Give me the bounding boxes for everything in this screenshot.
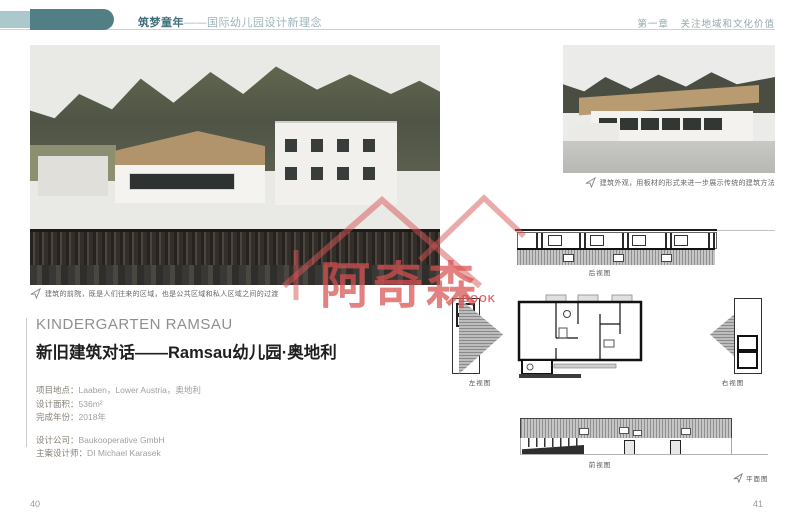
- roof-vent: [619, 427, 629, 434]
- left-view-drawing: [452, 296, 508, 376]
- detail-value: DI Michael Karasek: [87, 448, 161, 458]
- book-title: 筑梦童年——国际幼儿园设计新理念: [138, 14, 322, 30]
- main-photo-caption: 建筑的前院，既是人们往来的区域，也是公共区域和私人区域之间的过渡: [30, 288, 279, 299]
- door: [624, 440, 635, 455]
- detail-row: 设计面积：536m²: [36, 398, 201, 412]
- right-view-label: 右视图: [704, 377, 762, 387]
- detail-value: Laaben，Lower Austria，奥地利: [79, 385, 201, 395]
- chapter-header: 第一章 关注地域和文化价值: [637, 16, 775, 30]
- detail-value: 536m²: [79, 399, 103, 409]
- project-details: 项目地点：Laaben，Lower Austria，奥地利 设计面积：536m²…: [36, 384, 201, 461]
- window: [548, 235, 562, 246]
- roof-line: [515, 229, 717, 231]
- rear-view-label: 后视图: [545, 267, 655, 277]
- project-title-en: KINDERGARTEN RAMSAU: [36, 316, 233, 333]
- window: [613, 254, 624, 262]
- detail-value: 2018年: [79, 412, 106, 422]
- caption-pointer-icon: [585, 177, 596, 188]
- book-title-rest: ——国际幼儿园设计新理念: [184, 17, 322, 29]
- book-title-bold: 筑梦童年: [138, 17, 184, 29]
- detail-label: 项目地点：: [36, 385, 79, 395]
- roof-vent: [633, 430, 642, 436]
- window: [737, 335, 758, 351]
- kindergarten-window-band: [129, 173, 235, 190]
- roof-line-extension: [717, 230, 775, 231]
- caption-pointer-icon: [733, 473, 743, 483]
- gable-arrow: [459, 298, 503, 374]
- roof-vent: [579, 428, 589, 435]
- window: [661, 254, 672, 262]
- side-photo-caption-text: 建筑外观，用板材的形式来进一步展示传统的建筑方法: [600, 178, 775, 188]
- upper-facade: [517, 232, 717, 249]
- detail-row: 完成年份：2018年: [36, 411, 201, 425]
- main-photo-caption-text: 建筑的前院，既是人们往来的区域，也是公共区域和私人区域之间的过渡: [45, 289, 279, 299]
- project-title-cn: 新旧建筑对话——Ramsau幼儿园·奥地利: [36, 339, 337, 363]
- header-tab-dark: [30, 9, 114, 30]
- detail-row: 主案设计师：DI Michael Karasek: [36, 447, 201, 461]
- side-photo-caption: 建筑外观，用板材的形式来进一步展示传统的建筑方法: [560, 177, 775, 188]
- roof-vent: [681, 428, 691, 435]
- front-elevation-drawing: [520, 416, 770, 460]
- door: [670, 440, 681, 455]
- left-view-label: 左视图: [446, 377, 514, 387]
- floor-plan-drawing: [516, 294, 644, 382]
- chapter-number: 第一章: [637, 19, 669, 30]
- window: [674, 235, 688, 246]
- detail-label: 主案设计师：: [36, 448, 87, 458]
- window: [632, 235, 646, 246]
- main-photo: [30, 45, 440, 285]
- photo-asphalt: [30, 195, 440, 229]
- detail-label: 完成年份：: [36, 412, 79, 422]
- chapter-title: 关注地域和文化价值: [680, 19, 775, 30]
- school-building: [275, 121, 397, 205]
- side-photo: [563, 45, 775, 173]
- page-number-right: 41: [753, 499, 763, 509]
- side-photo-ground: [563, 141, 775, 173]
- detail-value: Baukooperative GmbH: [79, 435, 165, 445]
- detail-row: 设计公司：Baukooperative GmbH: [36, 434, 201, 448]
- school-window-row: [285, 139, 387, 152]
- window: [737, 351, 758, 369]
- caption-pointer-icon: [30, 288, 41, 299]
- photo-stone-wall: [30, 265, 440, 285]
- header-tab-light: [0, 11, 30, 28]
- lower-facade: [517, 248, 715, 265]
- detail-row: 项目地点：Laaben，Lower Austria，奥地利: [36, 384, 201, 398]
- detail-label: 设计面积：: [36, 399, 79, 409]
- title-rule: [26, 318, 27, 447]
- roof-band: [520, 418, 732, 440]
- plan-view-pointer: 平面图: [733, 473, 769, 483]
- side-building-annex: [569, 123, 619, 143]
- right-view-drawing: [704, 296, 762, 376]
- window: [563, 254, 574, 262]
- plan-view-label: 平面图: [746, 473, 769, 483]
- window: [590, 235, 604, 246]
- ground-line: [520, 454, 768, 455]
- rear-elevation-drawing: [515, 229, 777, 265]
- facade-strip: [734, 298, 762, 374]
- front-view-label: 前视图: [550, 459, 650, 469]
- ramp-rail: [528, 438, 582, 447]
- photo-fence: [30, 229, 440, 268]
- page-number-left: 40: [30, 499, 40, 509]
- photo-shed: [38, 153, 108, 196]
- school-window-row: [285, 167, 387, 180]
- detail-label: 设计公司：: [36, 435, 79, 445]
